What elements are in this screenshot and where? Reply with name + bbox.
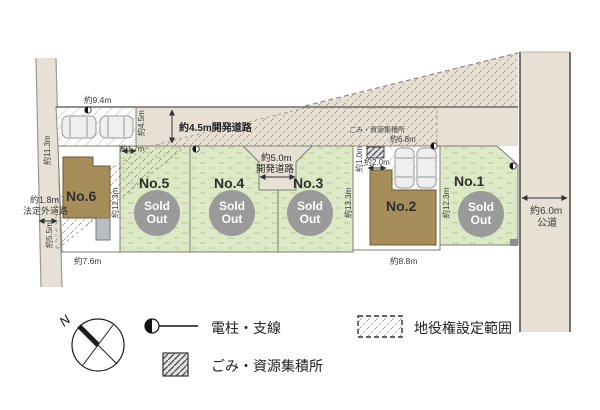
legend-garbage-label: ごみ・資源集積所 xyxy=(211,356,323,376)
lot-label-no2: No.2 xyxy=(386,198,416,214)
utility-pole-icon xyxy=(431,143,437,149)
car-icon xyxy=(62,116,96,138)
lot-label-no4: No.4 xyxy=(214,175,244,191)
mid-road-name-label: 開発道路 xyxy=(256,161,294,175)
car-icon xyxy=(417,148,436,188)
legend-easement-label: 地役権設定範囲 xyxy=(414,318,512,338)
utility-pole-icon xyxy=(510,163,516,169)
dim-12-3m-a: 約12.3m xyxy=(110,188,121,218)
compass-icon xyxy=(72,319,124,371)
sold-out-badge: Sold Out xyxy=(209,190,255,236)
top-road-label: 約4.5m開発道路 xyxy=(179,119,252,134)
dim-13-3m: 約13.3m xyxy=(343,188,354,218)
dim-12-3m-b: 約12.3m xyxy=(441,188,452,218)
utility-pole-icon xyxy=(145,319,198,333)
dim-2-0m: 約2.0m xyxy=(364,157,390,168)
dim-5-5m: 約5.5m xyxy=(44,222,55,248)
utility-pole-icon xyxy=(85,107,91,113)
lot-label-no3: No.3 xyxy=(293,175,323,191)
site-plan-page: No.6 No.5 No.4 No.3 No.2 No.1 Sold Out S… xyxy=(0,0,600,410)
utility-pole-icon xyxy=(193,146,199,152)
garbage-collection-icon xyxy=(163,353,188,376)
car-icon xyxy=(100,116,133,138)
easement-range-icon xyxy=(358,316,402,337)
legend-utility-pole-label: 電柱・支線 xyxy=(211,318,281,338)
lot-label-no5: No.5 xyxy=(139,175,169,191)
dim-11-3m: 約11.3m xyxy=(42,135,53,165)
sold-out-badge: Sold Out xyxy=(458,191,504,237)
sold-out-badge: Sold Out xyxy=(134,190,180,236)
dim-1-7m: 約1.7m xyxy=(120,143,144,154)
left-road-name-label: 法定外道路 xyxy=(23,204,68,217)
right-road-name-label: 公道 xyxy=(537,214,557,229)
corner-marker xyxy=(510,239,518,246)
dim-7-6m: 約7.6m xyxy=(74,255,101,267)
lot-label-no6: No.6 xyxy=(66,188,96,204)
lot-label-no1: No.1 xyxy=(454,173,484,189)
car-icon xyxy=(395,148,414,188)
dim-4-5m: 約4.5m xyxy=(136,110,147,136)
dim-1-0m: 約1.0m xyxy=(354,146,365,172)
sold-out-badge: Sold Out xyxy=(287,190,333,236)
dim-9-4m: 約9.4m xyxy=(84,94,111,106)
dim-8-8m: 約8.8m xyxy=(390,255,417,267)
dim-6-8m: 約6.8m xyxy=(390,134,416,145)
right-road xyxy=(520,52,570,332)
building-no6-annex xyxy=(96,218,110,240)
